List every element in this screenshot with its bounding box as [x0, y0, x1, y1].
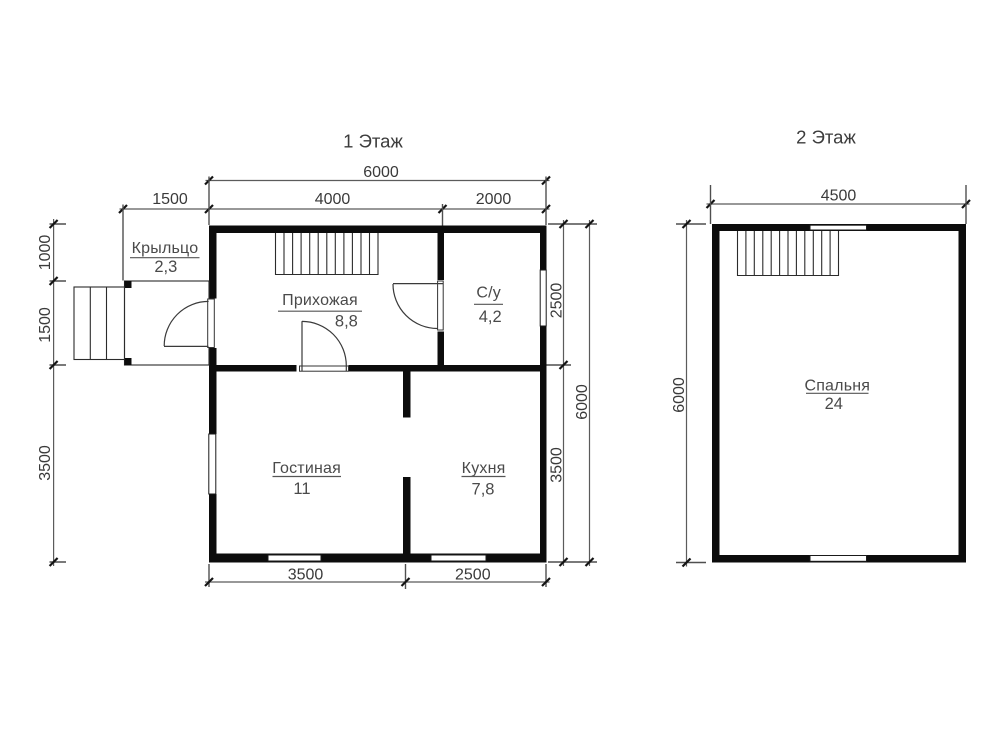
svg-text:Кухня: Кухня	[462, 460, 506, 477]
svg-text:24: 24	[825, 395, 843, 413]
svg-text:8,8: 8,8	[335, 313, 358, 331]
svg-text:2000: 2000	[476, 191, 512, 208]
svg-text:Гостиная: Гостиная	[272, 460, 341, 477]
svg-text:4,2: 4,2	[479, 308, 502, 326]
svg-text:1500: 1500	[37, 307, 54, 343]
svg-text:Прихожая: Прихожая	[282, 292, 358, 309]
svg-text:3500: 3500	[549, 447, 566, 483]
svg-text:6000: 6000	[671, 377, 688, 413]
svg-text:6000: 6000	[574, 384, 591, 420]
svg-text:3500: 3500	[37, 445, 54, 481]
svg-text:6000: 6000	[363, 164, 399, 181]
svg-text:1500: 1500	[152, 191, 188, 208]
svg-text:2500: 2500	[549, 283, 566, 319]
svg-text:1 Этаж: 1 Этаж	[343, 131, 403, 152]
svg-text:2 Этаж: 2 Этаж	[796, 127, 856, 148]
svg-text:2,3: 2,3	[154, 258, 177, 276]
svg-text:Спальня: Спальня	[804, 378, 870, 395]
svg-text:4000: 4000	[315, 191, 351, 208]
svg-text:1000: 1000	[37, 235, 54, 271]
svg-text:С/у: С/у	[476, 285, 501, 302]
svg-text:4500: 4500	[821, 188, 857, 205]
svg-text:2500: 2500	[455, 567, 491, 584]
svg-text:Крыльцо: Крыльцо	[132, 240, 199, 257]
svg-text:7,8: 7,8	[472, 481, 495, 499]
svg-text:3500: 3500	[288, 567, 324, 584]
svg-text:11: 11	[293, 480, 310, 498]
